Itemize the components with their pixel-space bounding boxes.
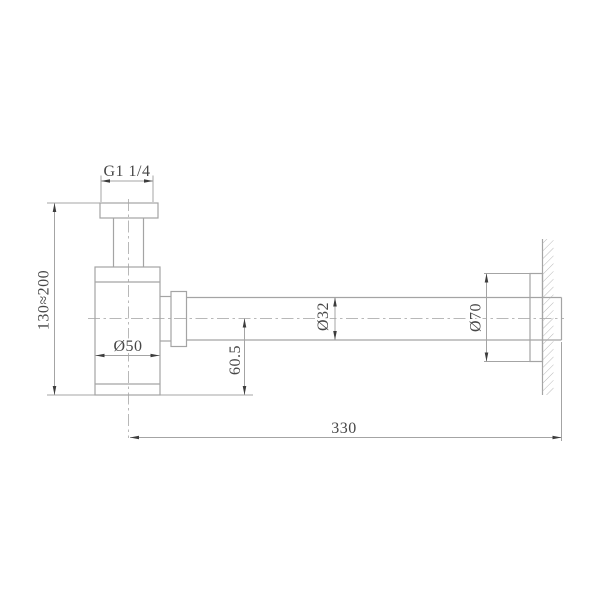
dim-height-arrow-top <box>53 203 57 212</box>
dim-length: 330 <box>130 342 562 441</box>
dim-outlet-height-arrow-bottom <box>243 386 247 395</box>
dim-length-arrow-left <box>130 436 139 440</box>
dim-height: 130≈200 <box>36 203 253 395</box>
dim-pipe-diameter-arrow-top <box>333 298 337 307</box>
dim-body-diameter-label: Ø50 <box>113 338 142 355</box>
wall-flange-outline <box>530 274 543 362</box>
dim-outlet-height: 60.5 <box>227 319 246 396</box>
dim-pipe-diameter-label: Ø32 <box>315 302 332 331</box>
dim-flange-arrow-top <box>485 274 489 283</box>
dim-body-diameter: Ø50 <box>96 338 160 357</box>
fixture-outline <box>95 203 562 395</box>
dim-outlet-height-arrow-top <box>243 319 247 328</box>
dim-length-label: 330 <box>331 420 357 437</box>
dim-thread: G1 1/4 <box>101 163 153 202</box>
dim-pipe-diameter-arrow-bottom <box>333 331 337 340</box>
dim-body-diameter-arrow-right <box>151 354 160 358</box>
dim-height-label: 130≈200 <box>36 270 53 330</box>
drawing-canvas: G1 1/4 130≈200 Ø50 60.5 Ø32 Ø70 <box>0 0 600 600</box>
trap-body-outline <box>95 267 160 395</box>
dim-height-arrow-bottom <box>53 386 57 395</box>
bottle-trap-technical-drawing: G1 1/4 130≈200 Ø50 60.5 Ø32 Ø70 <box>0 0 600 600</box>
dim-flange-diameter-label: Ø70 <box>468 303 485 332</box>
dim-body-diameter-arrow-left <box>96 354 105 358</box>
dim-outlet-height-label: 60.5 <box>227 345 244 375</box>
dim-flange-diameter: Ø70 <box>468 274 530 362</box>
dim-thread-label: G1 1/4 <box>104 163 151 180</box>
dim-flange-arrow-bottom <box>485 353 489 362</box>
dim-length-arrow-right <box>553 436 562 440</box>
wall-hatching <box>543 239 554 395</box>
